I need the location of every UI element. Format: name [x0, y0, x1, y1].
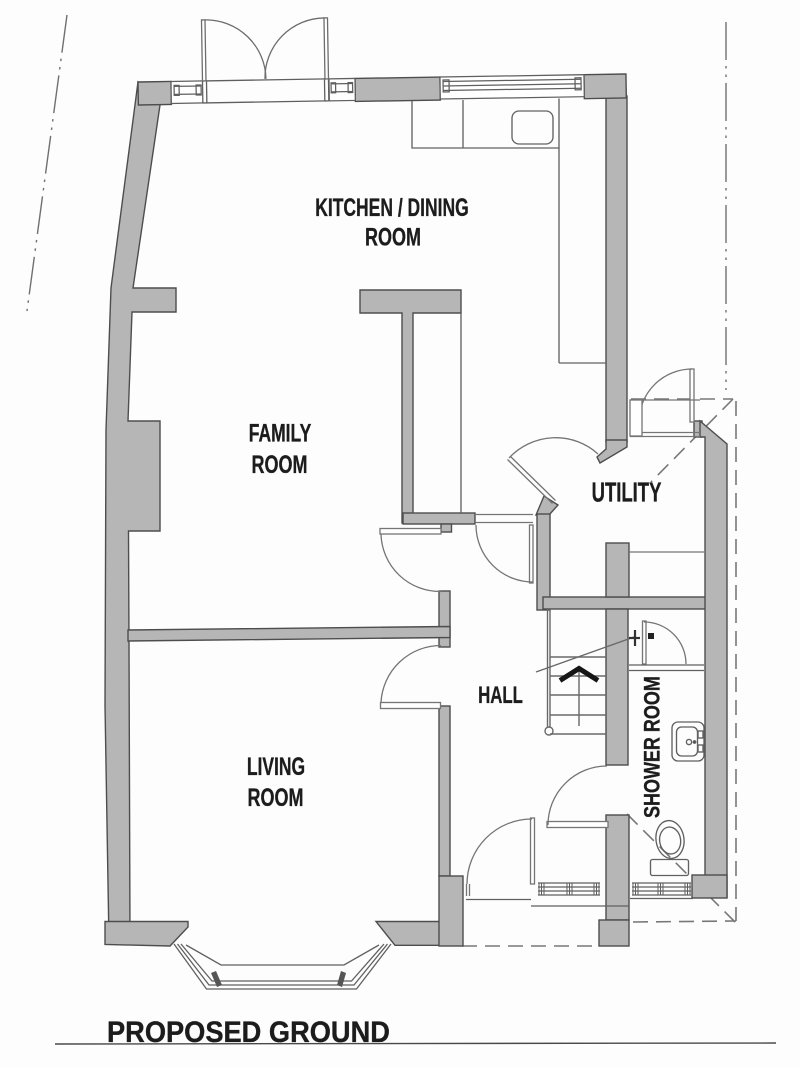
svg-text:UTILITY: UTILITY — [592, 478, 662, 509]
svg-text:ROOM: ROOM — [252, 450, 308, 479]
svg-text:FAMILY: FAMILY — [249, 418, 312, 447]
svg-text:ROOM: ROOM — [248, 783, 304, 812]
svg-text:LIVING: LIVING — [247, 752, 305, 781]
svg-text:ROOM: ROOM — [365, 223, 421, 252]
svg-text:SHOWER ROOM: SHOWER ROOM — [641, 676, 665, 818]
svg-text:HALL: HALL — [478, 682, 523, 709]
svg-text:KITCHEN / DINING: KITCHEN / DINING — [315, 193, 469, 222]
